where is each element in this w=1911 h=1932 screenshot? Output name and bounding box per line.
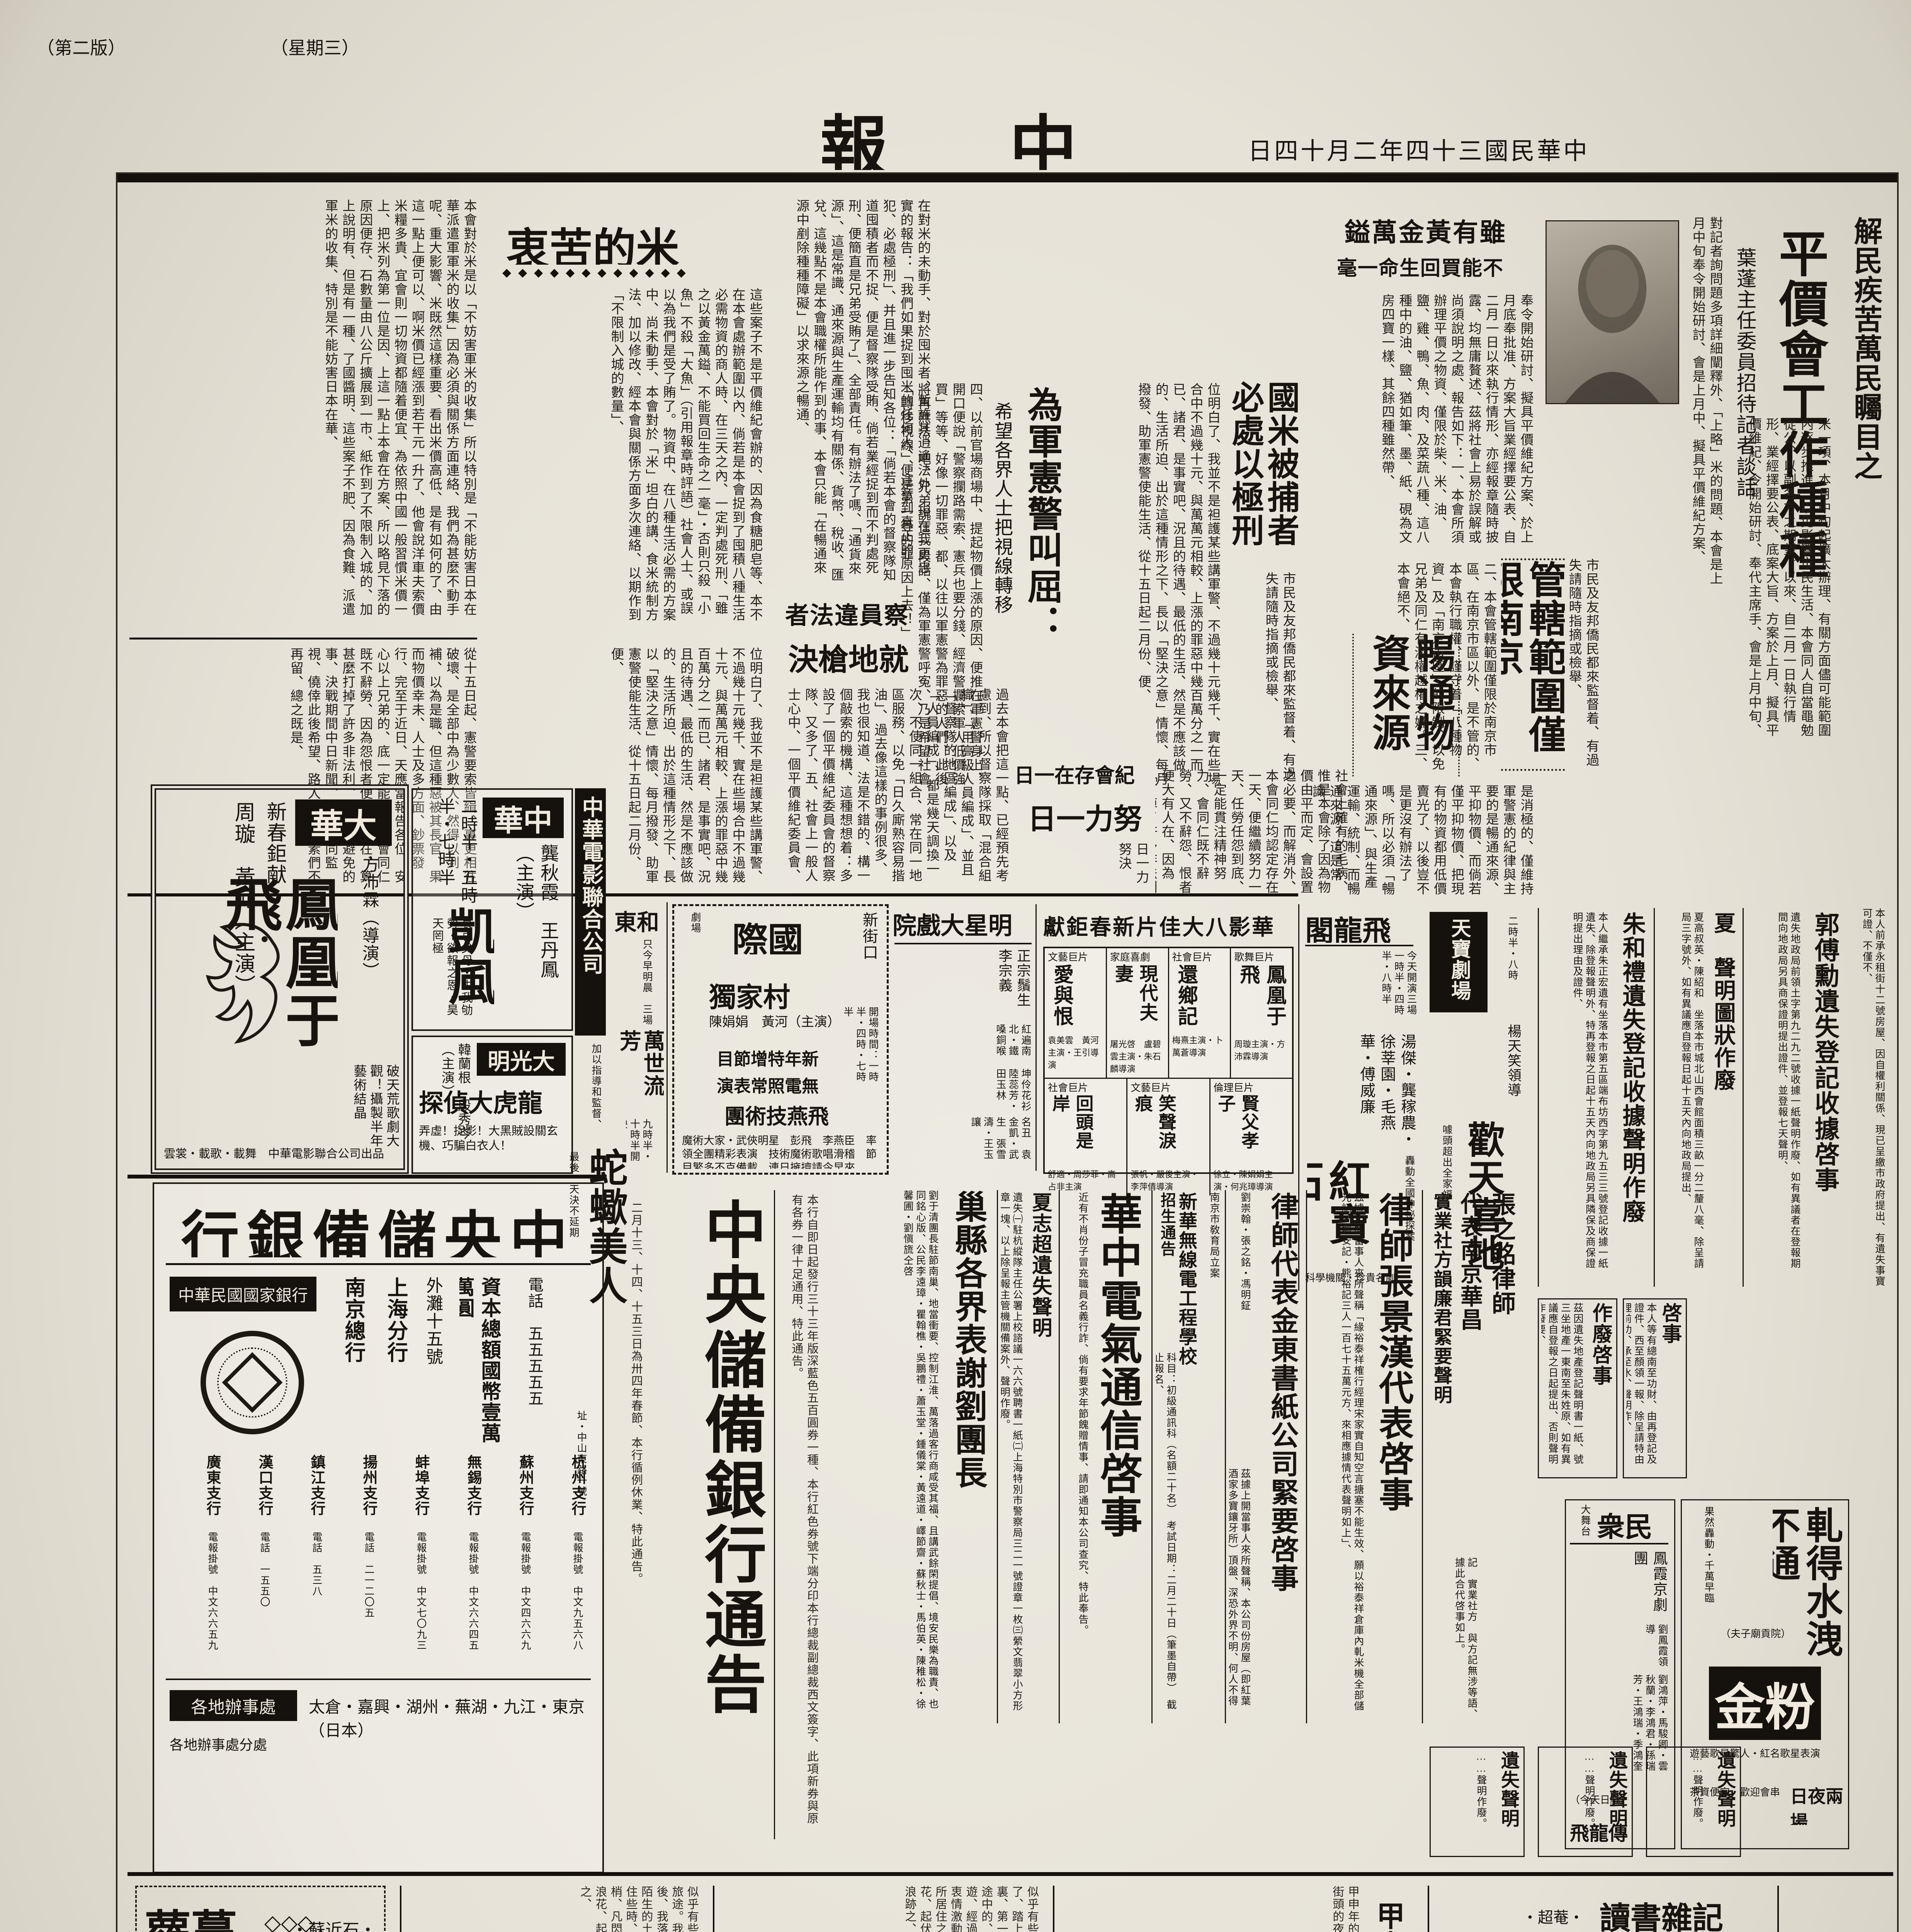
right-margin-notice: 本人前承永租街十二號房屋、因自權利關係、現已呈繳市政府提出、有遺失事寶可證、不僅… [1851,908,1885,1287]
minzhong-troupe: 鳳霞京劇團 [1570,1551,1668,1620]
huaying-film-grid: 文藝巨片 愛與恨 袁美雲 黃河主演・王引導演 家庭喜劇 現代夫妻 屠光啓 盧碧雲… [1043,947,1294,1174]
luoman-serial: 蘿蔓 ◇◇◇ ・蘇近石・ 天蒙立即覺得無限頹唐，但他鎮靜着自己，他對她說：「我太… [135,1886,386,1932]
bank-national-label: 中華民國國家銀行 [170,1277,316,1311]
mingxing-cast-4: 名丑 袁金凱・武生 張雪濤・王玉讓 [896,1117,1032,1167]
lost-notice-3: 遺失聲明 ……聲明作廢。 [1646,1747,1741,1857]
bottom-vr-1 [400,1886,401,1932]
film-title: 現代夫妻 [1110,964,1159,1037]
film-genre: 文藝巨片 [1131,1082,1206,1095]
jianggan-body: 似乎有些寂寞、幾個朋友、我却毫無留戀、他們都似乎有些動了、踏上了旅途。我老早就熟… [417,1886,699,1932]
mingxing-cast-1: 正宗鬚生 李宗義 [896,949,1032,1022]
daguangming-ad-box: 明光大 韓蘭根 殷秀岑（主演） 探偵大虎龍 弄虛！捉影！大黑賊設關玄機、巧騙白衣… [411,1036,573,1174]
xinhua-notice-type: 招生通告 [1156,1192,1177,1347]
chaoxian-body: 劉于清團長駐節南巢、地當衝要、控制江淮、萬落過客行商咸受其福、且講武餘閑提倡、境… [827,1190,939,1716]
guoji-troupe: 團術技燕飛 [724,1099,840,1126]
xinhua-authority: 南京市敎育局立案 [1199,1192,1220,1501]
zuofei-title: 作廢啓事 [1586,1303,1613,1457]
inspector-body: 過去本會把這一點、已經預先考慮到、所以督察隊採取「混合組織」、「用高級人員編成」… [770,688,1009,889]
jinfen-title-plate: 金粉 [1709,1667,1821,1740]
daguangming-theater-name: 明光大 [477,1043,566,1076]
jindong-title: 律師代表金東書紙公司緊要啓事 [1258,1192,1300,1710]
hedong-note-1: 只今早明晨 三場 [626,939,653,1028]
zhonghua-theater-name: 華中 [483,798,564,838]
guoji-film-title: 獨家村 [709,976,848,1010]
bank-ad-box: 行銀備儲央中 中華民國國家銀行 南京總行 上海分行 外灘十五號 資本總額國幣壹萬… [153,1182,604,1873]
jiashen-body: 甲申年的除夕、點綴着昇平的燈火、家家戶戶、爆竹聲中、辭舊歲迎新年、物價飛漲聲中的… [1066,1886,1360,1932]
lost-title: 遺失聲明 [1710,1751,1737,1851]
dahua-ad-box: 華大 新春鉅献 周璇 黃河（主演） 方沛霖（導演） 鳳凰于飛 破天荒歌劇大觀！攝… [155,788,405,1170]
plead-subhead: 希望各界人士把視線轉移 [990,402,1014,672]
jinfen-venue: （夫子廟貢院） [1721,1628,1817,1647]
guoji-stars: 陳娟娟 黃河（主演） [709,1014,856,1034]
film-cell: 歌舞巨片 鳳凰于飛 周璇主演・方沛霖導演 [1231,948,1292,1078]
jinfen-tagline-2: 果然轟動・千萬早臨 [1688,1506,1715,1661]
branch-contact: 電話 五三八 [311,1532,322,1597]
dushuzaji-title: 讀書雜記 [1600,1893,1762,1932]
zhonghua-stars: 龔秋霞 王丹鳳（主演） [498,844,560,983]
qishi-body: 本人等有總南至功財、由再登記及證件、西至顏領一報、除呈請特由理前功、承至水、聲明… [1626,1303,1657,1473]
mingxing-cast-3: 坤伶花衫 陸蕊芳・田玉林 [896,1068,1032,1115]
jiashen-title: 甲申除夕 [1368,1901,1406,1932]
zhangzhiming-title-3: 實業社方韻廉君緊要聲明 [1426,1192,1453,1710]
luoman-author: ・蘇近石・ [291,1916,376,1932]
film-credit: 張帆・嚴俊主演・李萍倩導演 [1131,1168,1206,1192]
zuofei-notice: 作廢啓事 茲因遺失地產登記聲明書一紙、號三坐地產一東南至朱姓原、如有異議應自登報… [1538,1298,1617,1478]
jindong-notice: 律師代表金東書紙公司緊要啓事 劉崇翰・張之銘・馮明鉦 茲據上開當事人來所聲稱、本… [1225,1190,1303,1723]
hedong-ad-box: 東和 只今早明晨 三場 萬世流芳 九時半・十時半開映 [612,902,668,1173]
qishi-notice: 啓事 本人等有總南至功財、由再登記及證件、西至顏領一報、除呈請特由理前功、承至水… [1623,1298,1687,1478]
zuofei-body: 茲因遺失地產登記聲明書一紙、號三坐地產一東南至朱姓原、如有異議應自登報之日起提出… [1541,1303,1584,1473]
branch-item: 揚州支行 電話 二一二〇五 [326,1454,378,1663]
feilongge-cast: 湯傑・龔稼農・徐莘園・毛燕華・傅威廉 [1305,1034,1417,1150]
zhangzhiming-title-2: 代表南京華昌 [1453,1192,1484,1617]
zhangzhiming-notice: 張之銘律師 代表南京華昌 實業社方韻廉君緊要聲明 記 實業社方 與方記無涉等語、… [1422,1190,1520,1723]
dahua-theater-name: 華大 [295,799,392,846]
minzhong-leader: 劉鳳霞領導 [1570,1624,1668,1670]
film-title: 鳳凰于飛 [1234,964,1287,1037]
film-title: 回頭是岸 [1048,1094,1095,1168]
film-cell: 社會巨片 回頭是岸 舒適・周莎菲・高占非主演 [1045,1079,1127,1196]
rice-article-title: 衷苦的米 [506,214,730,265]
guoji-extra-1: 目節增特年新 [717,1045,848,1068]
film-genre: 社會巨片 [1048,1082,1123,1095]
film-title: 笑聲淚痕 [1131,1094,1177,1168]
guoji-ad-box: 際國 新街口 劇場 開場時間：一時半・四時・七時半 獨家村 陳娟娟 黃河（主演）… [672,904,889,1175]
xia-body: 夏高叔英・陳紹和 坐落本市城北山西會館面積三畝一分二釐八毫、除呈請局三字號外、如… [1658,912,1704,1279]
inspector-headline-2: 決槍地就決 [788,636,931,678]
bank-offices-label-text: 各地辦事處 [191,1693,276,1718]
tianbao-plate: 天寶劇場 [1430,912,1488,1012]
lead-subhead-1: 鎰萬金黃有雖 [1345,212,1511,250]
xia-notice: 夏 聲明圖狀作廢 夏高叔英・陳紹和 坐落本市城北山西會館面積三畝一分二釐八毫、除… [1654,908,1740,1287]
film-genre: 文藝巨片 [1048,951,1103,964]
committee-headline-1: 日一在存會紀維 [1014,759,1149,792]
lost-notice-2: 遺失聲明 ……聲明作廢。 [1430,1747,1525,1857]
film-genre: 倫理巨片 [1214,1082,1289,1095]
bank-capital: 資本總額國幣壹萬萬圓 [459,1277,502,1462]
zhangzhiming-body: 記 實業社方 與方記無涉等語、據此合代啓事如上。 [1455,1557,1478,1719]
chuxiye-essay: 似乎有些寂寞、幾個朋友、我却毫無留戀、他們都似乎有些動了、踏上了旅途。我老早就熟… [726,1886,1039,1932]
zhangjinghan-title: 律師張景漢代表啓事 [1369,1192,1415,1710]
bank-banner-rule [166,1263,591,1265]
mingxing-cast-2: 紅遍南北・鐵嗓銅喉 [896,1024,1032,1066]
guoji-location: 新街口 [856,912,879,1005]
bank-grid-rule [166,1679,591,1680]
film-credit: 周璇主演・方沛霖導演 [1234,1037,1289,1062]
guoji-small-print: 魔術大家・武俠明星 彭飛 李燕臣 率領全團精彩表演 技術魔術歌唱滑稽 節目繁多不… [682,1134,879,1169]
bottom-vr-4 [1428,1886,1429,1932]
branch-item: 無錫支行 電報掛號 中文六六四五 [430,1454,483,1663]
chaoxian-title: 巢縣各界表謝劉團長 [947,1190,989,1615]
jiashen-essay: 甲申除夕 甲申年的除夕、點綴着昇平的燈火、家家戶戶、爆竹聲中、辭舊歲迎新年、物價… [1066,1886,1414,1932]
hedong-film-title: 萬世流芳 [615,1030,664,1115]
rice-title-ornament: ◆◆◆◆◆◆◆◆◆◆◆◆ [502,266,734,283]
huazhong-body: 近有不肖份子冒充職員名義行詐、倘有要求年節餽贈情事、請即通知本公司查究、特此奉告… [1062,1192,1089,1718]
branch-contact: 電報掛號 中文六六四五 [468,1532,479,1651]
bottom-vr-3 [1053,1886,1054,1932]
bank-offices-label: 各地辦事處 [170,1690,297,1721]
committee-body: 社會上確有的毛病、惟是本會除了因為物價由平而定、會設置之必要、而解消外、本會同仁… [1155,769,1348,896]
dahua-director: 方沛霖（導演） [353,855,380,1064]
luoman-title-box: 蘿蔓 ◇◇◇ ・蘇近石・ [135,1886,386,1932]
newspaper-page: （第二版） （星期三） 報 中 日四十月二年四十三國民華中 解民疾苦萬民矚目之 … [0,0,1911,1932]
hedong-theater-name: 東和 [614,904,665,935]
date-line: 日四十月二年四十三國民華中 [1248,131,1889,166]
guofuxun-notice: 郭傅勳遺失登記收據啓事 遺失地政局前領土字第九二九二號收據一紙聲明作廢、如有異議… [1743,908,1844,1287]
branch-item: 鎮江支行 電話 五三八 [274,1454,326,1663]
mingxing-rule [894,943,1032,944]
bottom-vr-2 [713,1886,714,1932]
minzhong-rule [1570,1543,1668,1544]
weekday-note: （星期三） [270,34,386,61]
dahua-blurb: 破天荒歌劇大觀！攝製半年藝術結晶 [191,1064,400,1161]
bank-address: 外灘十五號 [417,1277,444,1439]
huaying-strip: 中華電影聯合公司 [575,788,606,1036]
film-title: 賢父孝子 [1214,1094,1260,1168]
qishi-title: 啓事 [1659,1303,1683,1418]
branch-name: 蚌埠支行 [413,1454,429,1516]
xia-title: 夏 聲明圖狀作廢 [1706,912,1737,1279]
hoarders-body: 市民及友邦僑民都來監督着、有過失請隨時指摘或檢舉、 [1231,572,1296,788]
lost-title: 遺失聲明 [1602,1751,1629,1851]
bank-shanghai-branch: 上海分行 [374,1277,409,1439]
bank-banner: 行銀備儲央中 [166,1192,591,1257]
bank-head-office: 南京總行 [332,1277,367,1439]
zhuheli-notice: 朱和禮遺失登記收據聲明作廢 本人繼承朱正宏遺有坐落本市第五區端布坊西字第九五三三… [1538,908,1651,1287]
branch-contact: 電話 二一二〇五 [363,1532,374,1618]
film-credit: 徐立・陳娟娟主演・何兆璋導演 [1214,1168,1289,1192]
huazhong-notice: 華中電氣通信啓事 近有不肖份子冒充職員名義行詐、倘有要求年節餽贈情事、請即通知本… [1059,1190,1149,1723]
zhangjinghan-body: 茲據上開當事人來所聲稱「緣裕泰祥榷行經理宋家實自知空言搪塞不能生效、願以裕泰祥倉… [1310,1192,1364,1718]
xiazhichao-body: 遺失㈠駐杭縱隊主任公署上校諮議一六六號聘書一紙㈡上海特別市警察局三二一號證章一枚… [1000,1192,1023,1718]
branch-contact: 電報掛號 中文四六六九 [520,1532,531,1651]
bank-notice-body-1: 二月十三、十四、十五三日為卅四年春節、本行循例休業、特此通告。 [609,1202,643,1820]
film-cell: 文藝巨片 笑聲淚痕 張帆・嚴俊主演・李萍倩導演 [1127,1079,1210,1196]
branch-name: 廣東支行 [204,1454,220,1516]
xinhua-notice: 南京市敎育局立案 新華無線電工程學校 招生通告 科目：初級通訊科（名額二十名） … [1151,1190,1222,1723]
film-cell: 社會巨片 還鄉記 梅熹主演・卜萬蒼導演 [1169,948,1231,1078]
bank-offices-list: 太倉・嘉興・湖州・蕪湖・九江・東京（日本） [309,1694,587,1740]
tianbao-lead: 楊天笑領導 [1430,1024,1522,1117]
bank-notice-body-2: 本行自即日起發行三十三年版深藍色五百圓券一種、本行紅色券號下端分印本行總裁副總裁… [777,1194,819,1828]
dushuzaji-author: ・超菴・ [1522,1905,1592,1928]
dahua-film-title: 鳳凰于飛 [210,875,338,1053]
film-genre: 歌舞巨片 [1234,951,1289,964]
lost-body: ……聲明作廢。 [1541,1751,1595,1851]
article-column-left: 本會對於米是以「不妨害軍米的收集」所以特別是「不能妨害日本在華派遣軍軍米的收集」… [129,199,477,630]
portrait-silhouette [1547,221,1678,403]
committee-body-under: 日一力努決 [1014,842,1149,893]
branch-item: 漢口支行 電話 一五五〇 [222,1454,274,1663]
branch-item: 蚌埠支行 電報掛號 中文七〇九三 [378,1454,430,1663]
branch-item: 蘇州支行 電報掛號 中文四六六九 [483,1454,535,1663]
branch-item: 廣東支行 電報掛號 中文六六五九 [170,1454,222,1663]
jindong-body: 茲據上開當事人來所聲稱、本公司份房屋（即紅葉酒家多寶鑲牙所）頂盤、深恐外界不明、… [1228,1468,1251,1716]
film-cell: 家庭喜劇 現代夫妻 屠光啓 盧碧雲主演・朱石麟導演 [1107,948,1169,1078]
bank-telephone: 電話 五五五五五 [513,1277,544,1439]
film-credit: 屠光啓 盧碧雲主演・朱石麟導演 [1110,1037,1165,1075]
xiazhichao-notice: 夏志超遺失聲明 遺失㈠駐杭縱隊主任公署上校諮議一六六號聘書一紙㈡上海特別市警察局… [997,1190,1056,1723]
zhonghua-poem: 哀哀父母・生我劬勞・欲報之恩・昊天罔極 [419,917,473,1022]
bank-sub-offices: 各地辦事處分處 [170,1736,363,1760]
guofuxun-title: 郭傅勳遺失登記收據啓事 [1802,912,1841,1279]
feilongge-theater-name: 閣龍飛 [1305,908,1417,943]
branch-name: 揚州支行 [360,1454,377,1516]
film-credit: 舒適・周莎菲・高占非主演 [1048,1168,1123,1192]
minzhong-theater-name: 衆民 [1597,1504,1670,1539]
film-genre: 家庭喜劇 [1110,951,1165,964]
lead-subhead-2: 毫一命生回買能不 [1337,252,1515,283]
zhuheli-body: 本人繼承朱正宏遺有坐落本市第五區端布坊西字第九五三三號登記收據一紙遺失、除登報聲… [1543,912,1608,1279]
mingxing-theater-name: 院戲大星明 [893,906,1035,939]
masthead: 報 中 [804,93,1120,170]
portrait-photo [1545,220,1679,404]
tianbao-theater-name: 天寶劇場 [1445,918,1472,1007]
hedong-times: 九時半・十時半開映 [626,1119,653,1171]
dahua-producer: 雲裳・載歌・載舞 中華電影聯合公司出品 [164,1147,396,1164]
bank-logo [201,1331,304,1434]
daguangming-blurb: 弄虛！捉影！大黑賊設關玄機、巧騙白衣人！ [419,1124,562,1167]
film-title: 還鄉記 [1172,964,1199,1034]
guofuxun-body: 遺失地政局前領土字第九二九二號收據一紙聲明作廢、如有異議者在登報期間向地政局另具… [1747,912,1801,1279]
hoarders-headline: 國米被捕者必處以極刑 [1227,381,1298,564]
guoji-theater-name: 際國 [732,912,833,954]
film-title: 愛與恨 [1048,964,1075,1034]
feilongge-rule [1305,945,1413,946]
bank-ad-top-rule [128,1175,607,1179]
rice-article-body: 這些案子不是平價維紀會辦的、因為食糖肥皂等、本不在本會處辦範圍以內、倘若是本會捉… [485,288,763,628]
chaoxian-notice: 巢縣各界表謝劉團長 劉于清團長駐節南巢、地當衝要、控制江淮、萬落過客行商咸受其福… [827,1190,989,1723]
lost-notice-1: 遺失聲明 ……聲明作廢。 [1538,1747,1633,1857]
film-cell: 文藝巨片 愛與恨 袁美雲 黃河主演・王引導演 [1045,948,1107,1078]
dushuzaji-column: 讀書雜記 ・超菴・ 飛龍傳 年來讀書、隨手札記、《飛龍傳》一書、坊間流傳已久、述… [1441,1886,1770,1932]
film-genre: 社會巨片 [1172,951,1227,964]
luoman-title: 蘿蔓 [145,1895,237,1932]
committee-headline-2: 日一力努決 [1028,796,1151,838]
bank-branch-grid: 廣東支行 電報掛號 中文六六五九 漢口支行 電話 一五五〇 鎮江支行 電話 五三… [170,1454,587,1671]
tianbao-times: 二時半・八時 [1491,916,1518,1012]
film-cell: 倫理巨片 賢父孝子 徐立・陳娟娟主演・何兆璋導演 [1211,1079,1292,1196]
page-number-note: （第二版） [37,34,153,61]
branch-name: 鎮江支行 [308,1454,325,1516]
film-credit: 袁美雲 黃河主演・王引導演 [1048,1034,1103,1071]
huazhong-title: 華中電氣通信啓事 [1095,1192,1145,1710]
jurisdiction-headline: 管轄範圍僅限南京 [1501,558,1565,771]
lost-title: 遺失聲明 [1493,1751,1520,1851]
jurisdiction-body: 二、本會管轄範圍僅限於南京市區、在南京市區以外、是不管的、本會執行職權、謹守着「… [1395,562,1497,773]
zhonghua-ad-box: 華中 二時半・五時半・七時半 龔秋霞 王丹鳳（主演） 凱風 哀哀父母・生我劬勞・… [411,788,573,1031]
jianggan-essay: 江 干 似乎有些寂寞、幾個朋友、我却毫無留戀、他們都似乎有些動了、踏上了旅途。我… [417,1886,699,1932]
lead-kicker: 解民疾苦萬民矚目之 [1838,216,1884,510]
mingxing-ad-box: 院戲大星明 正宗鬚生 李宗義 紅遍南北・鐵嗓銅喉 坤伶花衫 陸蕊芳・田玉林 名丑… [893,904,1037,1171]
bottom-vr-5 [1777,1886,1779,1932]
huaying-banner: 獻鉅春新片佳大八影華 [1043,910,1290,941]
chuxiye-intro: 似乎有些寂寞、幾個朋友、我却毫無留戀、他們都似乎有些動了、踏上了旅途。我老早就熟… [726,1886,1039,1932]
lost-body: ……聲明作廢。 [1433,1751,1487,1851]
guoji-venue-label: 劇場 [680,912,701,989]
bank-notice-ad: 中央儲備銀行通告 二月十三、十四、十五三日為卅四年春節、本行循例休業、特此通告。 [603,1190,775,1839]
branch-contact: 電話 一五五〇 [259,1532,270,1607]
jindong-lawyers: 劉崇翰・張之銘・馮明鉦 [1228,1192,1251,1463]
interview-column: 位明白了、我並不是袒護某些講軍警、不過幾十元幾千、實在些場合中不過幾十元、與萬萬… [1070,383,1221,788]
xinhua-body: 科目：初級通訊科（名額二十名） 考試日期：二月二十日（筆墨自帶） 截止報名、 [1156,1352,1177,1716]
inspector-headline-1: 者法違員察督 [785,596,932,633]
xiazhichao-title: 夏志超遺失聲明 [1026,1192,1053,1540]
huaying-strip-note: 加以指導和監督、 [575,1043,602,1140]
zhuheli-title: 朱和禮遺失登記收據聲明作廢 [1610,912,1647,1279]
shexie-address: 址・中山東路一號 [564,1410,587,1642]
branch-contact: 電報掛號 中文七〇九三 [415,1532,427,1651]
zhangjinghan-notice: 律師張景漢代表啓事 茲據上開當事人來所聲稱「緣裕泰祥榷行經理宋家實自知空言搪塞不… [1306,1190,1419,1723]
feilongge-times: 今天開演三場 一時半・四時半・八時半 [1305,951,1417,1028]
branch-name: 漢口支行 [256,1454,272,1516]
lost-body: ……聲明作廢。 [1649,1751,1704,1851]
huaying-strip-label: 中華電影聯合公司 [576,796,605,1028]
branch-name: 蘇州支行 [517,1454,533,1516]
column-divider-rule [129,638,477,639]
branch-contact: 電報掛號 中文六六五九 [207,1532,218,1651]
guoji-extra-2: 演表常照電無 [717,1072,848,1095]
shexie-note: 最後一天決不延期 [556,1151,580,1383]
bottom-band-rule [128,1872,1893,1876]
branch-name: 無錫支行 [465,1454,481,1516]
daguangming-film-title: 探偵大虎龍 [419,1083,566,1118]
film-credit: 梅熹主演・卜萬蒼導演 [1172,1034,1227,1058]
jinfen-times: 日夜兩場 [1790,1782,1844,1825]
plead-headline: 為軍憲警叫屈： [1017,386,1061,672]
zhonghua-times: 二時半・五時半・七時半 [421,798,479,921]
monitor-note: 市民及友邦僑民都來監督着、有過失請隨時指摘或檢舉、 [1569,558,1600,767]
bank-national-text: 中華民國國家銀行 [178,1282,308,1306]
lead-body: 奉令開始研討、擬具平價維紀方案、於上月底奉批准、方案大旨業經擇要公表、自二月一日… [1302,294,1534,556]
zhangzhiming-title-1: 張之銘律師 [1486,1192,1517,1540]
